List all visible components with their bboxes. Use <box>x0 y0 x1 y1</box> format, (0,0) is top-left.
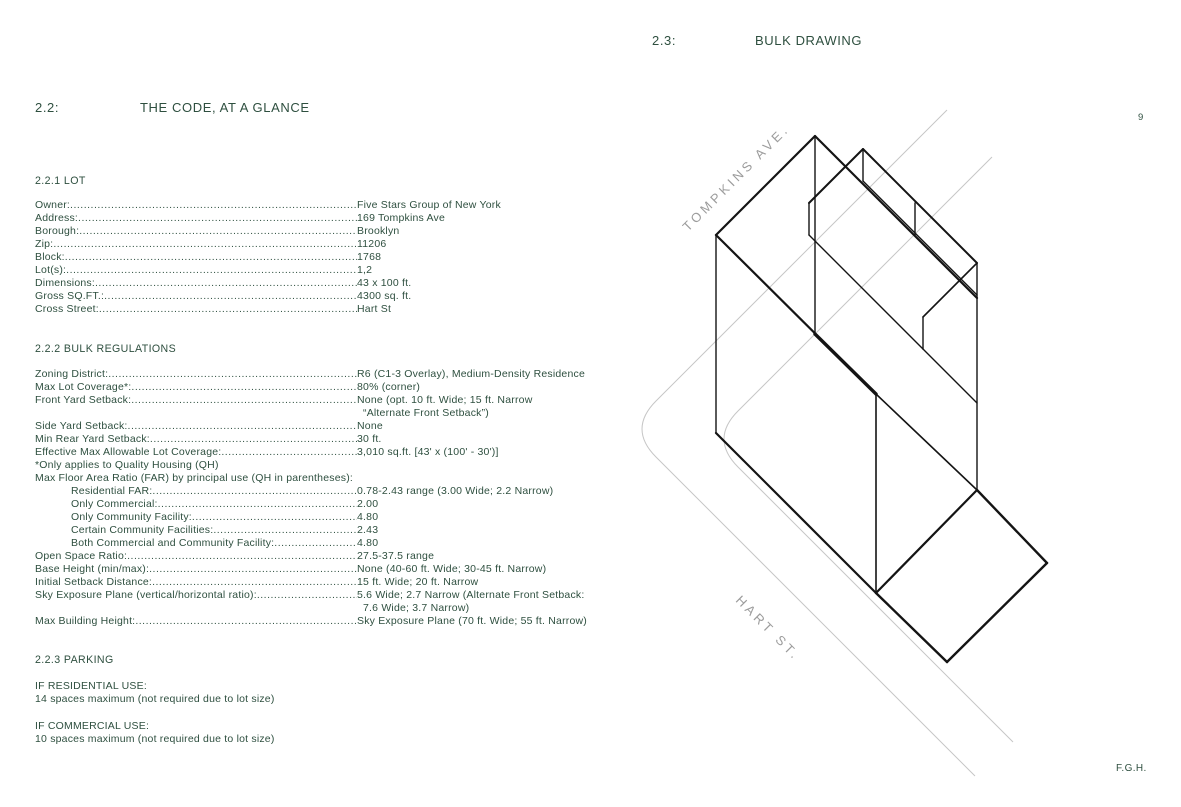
page-number: 9 <box>1138 112 1143 123</box>
section-2-3-header: 2.3: BULK DRAWING <box>652 33 676 48</box>
section-2-2-header: 2.2: THE CODE, AT A GLANCE <box>35 100 59 115</box>
spec-row: Cross Street:...........................… <box>35 303 635 316</box>
document-page: { "page": { "number": "9", "footer_initi… <box>0 0 1181 807</box>
parking-group-title: IF RESIDENTIAL USE: <box>35 680 275 693</box>
bulk-regulations-heading: 2.2.2 BULK REGULATIONS <box>35 343 176 355</box>
lot-table: Owner:..................................… <box>35 199 635 316</box>
spec-row: Zip:....................................… <box>35 238 635 251</box>
section-2-3-title: BULK DRAWING <box>755 33 862 48</box>
parking-group: IF COMMERCIAL USE:10 spaces maximum (not… <box>35 720 275 746</box>
street-line-outer <box>642 110 975 776</box>
spec-row: Max Building Height:....................… <box>35 615 635 628</box>
spec-row: Min Rear Yard Setback:..................… <box>35 433 635 446</box>
spec-row: Both Commercial and Community Facility:.… <box>35 537 635 550</box>
spec-row: Borough:................................… <box>35 225 635 238</box>
spec-row: Gross SQ.FT.:...........................… <box>35 290 635 303</box>
spec-row: Block:..................................… <box>35 251 635 264</box>
spec-row: Side Yard Setback:......................… <box>35 420 635 433</box>
spec-row: Base Height (min/max):..................… <box>35 563 635 576</box>
spec-row: Zoning District:........................… <box>35 368 635 381</box>
building-wireframe <box>716 136 1047 662</box>
parking-group-detail: 10 spaces maximum (not required due to l… <box>35 733 275 746</box>
spec-row: Address:................................… <box>35 212 635 225</box>
spec-row: Max Floor Area Ratio (FAR) by principal … <box>35 472 635 485</box>
parking-group: IF RESIDENTIAL USE:14 spaces maximum (no… <box>35 680 275 706</box>
spec-row: Certain Community Facilities:...........… <box>35 524 635 537</box>
spec-row: “Alternate Front Setback”) <box>35 407 635 420</box>
parking-group-detail: 14 spaces maximum (not required due to l… <box>35 693 275 706</box>
spec-row: Sky Exposure Plane (vertical/horizontal … <box>35 589 635 602</box>
footer-initials: F.G.H. <box>1116 763 1147 774</box>
spec-row: Only Commercial:........................… <box>35 498 635 511</box>
street-label-hart: HART ST. <box>733 593 804 664</box>
spec-row: *Only applies to Quality Housing (QH) <box>35 459 635 472</box>
spec-row: Front Yard Setback:.....................… <box>35 394 635 407</box>
spec-row: Lot(s):.................................… <box>35 264 635 277</box>
section-2-2-title: THE CODE, AT A GLANCE <box>140 100 310 115</box>
spec-row: Owner:..................................… <box>35 199 635 212</box>
bulk-regulations-table: Zoning District:........................… <box>35 368 635 628</box>
street-label-tompkins: TOMPKINS AVE. <box>680 121 793 234</box>
spec-row: Dimensions:.............................… <box>35 277 635 290</box>
section-2-2-id: 2.2: <box>35 100 59 115</box>
street-line-inner <box>724 157 1013 742</box>
spec-row: Effective Max Allowable Lot Coverage:...… <box>35 446 635 459</box>
spec-row: Max Lot Coverage*:......................… <box>35 381 635 394</box>
spec-row: Open Space Ratio:.......................… <box>35 550 635 563</box>
spec-row: Only Community Facility:................… <box>35 511 635 524</box>
spec-row: Residential FAR:........................… <box>35 485 635 498</box>
section-2-3-id: 2.3: <box>652 33 676 48</box>
parking-heading: 2.2.3 PARKING <box>35 654 114 666</box>
spec-row: 7.6 Wide; 3.7 Narrow) <box>35 602 635 615</box>
parking-group-title: IF COMMERCIAL USE: <box>35 720 275 733</box>
spec-row: Initial Setback Distance:...............… <box>35 576 635 589</box>
parking-groups: IF RESIDENTIAL USE:14 spaces maximum (no… <box>35 680 275 760</box>
lot-heading: 2.2.1 LOT <box>35 175 86 187</box>
